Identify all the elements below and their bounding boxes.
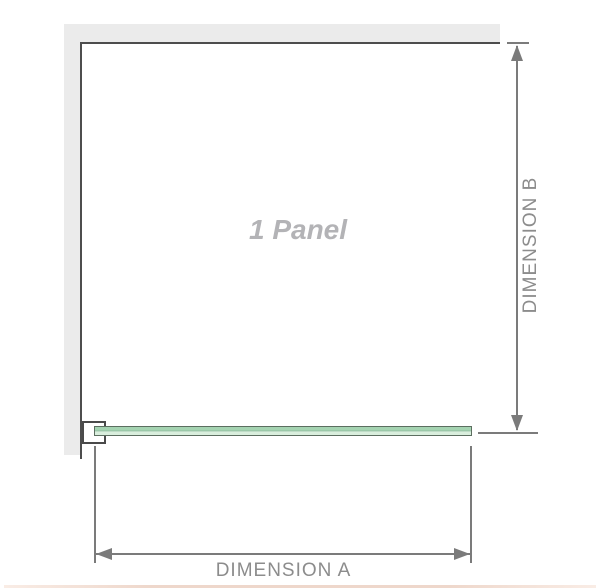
wall-left bbox=[64, 24, 80, 455]
glass-panel-bar bbox=[94, 426, 472, 436]
dimension-b-bottom-tick bbox=[478, 432, 538, 434]
dimension-a-line bbox=[96, 553, 470, 555]
panel-count-label: 1 Panel bbox=[249, 214, 347, 246]
dimension-b-top-tick bbox=[507, 42, 529, 44]
wall-inner-edge-top bbox=[80, 42, 500, 44]
dimension-b-label: DIMENSION B bbox=[520, 177, 542, 314]
arrow-down-icon bbox=[511, 415, 523, 431]
dimension-a-extension-line-right bbox=[470, 446, 472, 563]
dimension-a-extension-line-left bbox=[94, 446, 96, 563]
wall-top bbox=[64, 24, 500, 42]
arrow-left-icon bbox=[96, 548, 112, 560]
arrow-right-icon bbox=[454, 548, 470, 560]
dimension-b-line bbox=[516, 46, 518, 430]
dimension-a-label: DIMENSION A bbox=[95, 560, 472, 582]
wall-inner-edge-left bbox=[80, 42, 82, 459]
arrow-up-icon bbox=[511, 45, 523, 61]
diagram-canvas: 1 Panel DIMENSION A DIMENSION B bbox=[0, 0, 600, 588]
